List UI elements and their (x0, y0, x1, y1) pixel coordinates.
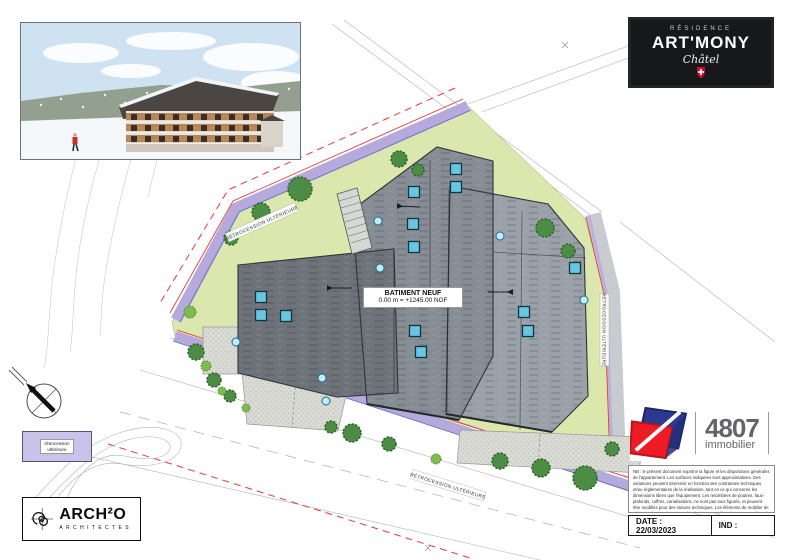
agency-number: 4807 (705, 415, 759, 441)
legend-retrocession: rétrocession ultérieure (22, 431, 92, 462)
index-field: IND : (712, 516, 774, 535)
date-field: DATE : 22/03/2023 (629, 516, 712, 535)
swiss-shield-icon (696, 67, 706, 79)
svg-text:RÉTROCESSION ULTÉRIEURE: RÉTROCESSION ULTÉRIEURE (602, 293, 607, 366)
legend-label: rétrocession ultérieure (40, 439, 73, 455)
residence-label: RÉSIDENCE (670, 26, 732, 32)
architect-subtitle: ARCHITECTES (59, 526, 132, 531)
building-label-line1: BATIMENT NEUF (364, 290, 462, 297)
site-plan-sheet: RÉTROCESSION ULTÉRIEURE RÉTROCESSION ULT… (0, 0, 785, 560)
spiral-compass-icon (31, 504, 53, 534)
building-label-line2: 0.00 m = +1245.00 NGF (364, 297, 462, 304)
residence-name: ART'MONY (652, 33, 750, 53)
architect-logo-block: ARCH²O ARCHITECTES (22, 497, 141, 541)
residence-place: Châtel (683, 53, 720, 66)
photo-illustration (21, 23, 300, 159)
legal-notice-text: NB : le présent document exprime la figu… (633, 469, 770, 513)
title-block: DATE : 22/03/2023 IND : (628, 515, 775, 536)
agency-label: immobilier (705, 440, 759, 451)
band-label-right: RÉTROCESSION ULTÉRIEURE (600, 293, 609, 366)
residence-badge: RÉSIDENCE ART'MONY Châtel (628, 17, 774, 88)
legal-notice: NB : le présent document exprime la figu… (628, 465, 775, 513)
agency-cube-icon (630, 406, 688, 460)
building-label: BATIMENT NEUF 0.00 m = +1245.00 NGF (363, 287, 463, 308)
building-rendering-photo (20, 22, 301, 160)
agency-logo-block: 4807 immobilier (630, 404, 775, 461)
architect-name: ARCH²O (59, 507, 132, 523)
